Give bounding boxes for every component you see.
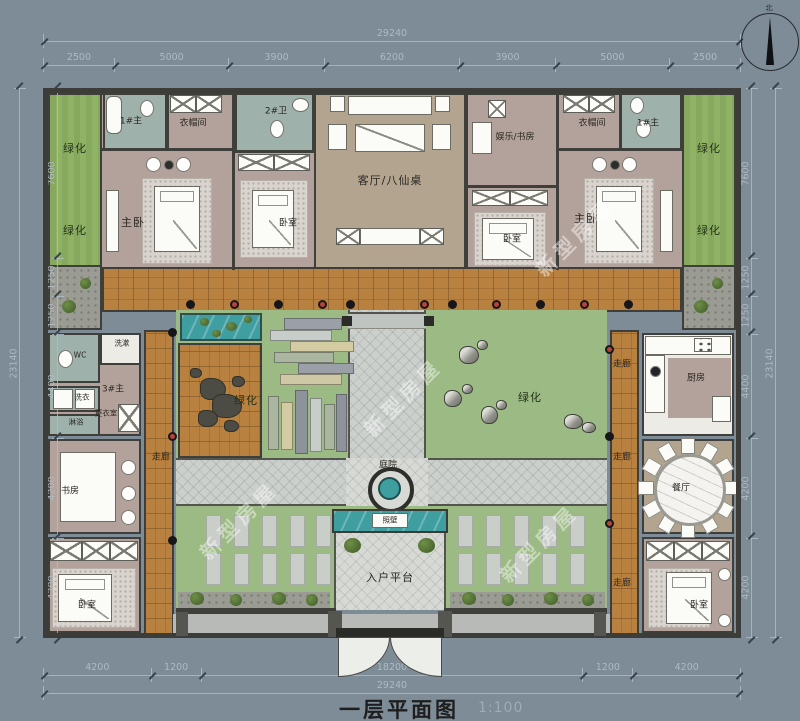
site-outer-wall — [43, 88, 741, 638]
dim-label: 23140 — [765, 348, 776, 378]
dim-label: 1200 — [595, 662, 621, 673]
floor-plan-canvas: 29240 2500500039006200390050002500 42001… — [0, 0, 800, 721]
dim-label: 4200 — [674, 662, 700, 673]
room-label-wash: 洗漱 — [115, 338, 130, 349]
compass-north-label: 北 — [765, 3, 773, 14]
dim-label: 1200 — [163, 662, 189, 673]
room-label-cloak: 衣帽间 — [179, 116, 206, 129]
dim-label: 4400 — [741, 375, 752, 399]
room-label-corridor: 走廊 — [613, 450, 631, 463]
room-label-ent-study: 娱乐/书房 — [495, 130, 534, 143]
dim-label: 3900 — [494, 52, 520, 63]
room-label-corridor: 走廊 — [152, 450, 170, 463]
room-label-dining: 餐厅 — [672, 481, 690, 494]
room-label-green: 绿化 — [63, 140, 87, 156]
gate-pier — [176, 612, 188, 636]
gate-pier — [594, 612, 606, 636]
room-label-green: 绿化 — [697, 222, 721, 238]
column-dot — [274, 300, 283, 309]
dim-segment: 5000 — [555, 58, 670, 72]
column-dot — [605, 519, 614, 528]
column-dot — [605, 345, 614, 354]
column-dot — [605, 432, 614, 441]
drawing-title: 一层平面图 — [333, 694, 465, 721]
dim-label: 29240 — [376, 28, 408, 39]
dim-label: 2500 — [66, 52, 92, 63]
wall — [232, 93, 235, 270]
dim-label: 3900 — [263, 52, 289, 63]
south-wall-east — [444, 608, 607, 614]
dim-label: 4200 — [741, 476, 752, 500]
dim-segment: 4400 — [746, 334, 758, 438]
label-courtyard: 庭院 — [379, 458, 397, 471]
dim-label: 4200 — [741, 576, 752, 600]
room-label-green: 绿化 — [697, 140, 721, 156]
dim-segment: 4200 — [632, 668, 741, 682]
column-dot — [346, 300, 355, 309]
dim-segment: 4200 — [43, 668, 151, 682]
dim-top-total: 29240 — [43, 34, 741, 48]
dim-label: 1250 — [741, 266, 752, 290]
label-screen-wall: 照壁 — [383, 515, 398, 526]
dim-segment: 6200 — [324, 58, 460, 72]
room-label-corridor: 走廊 — [613, 576, 631, 589]
dim-segment: 2500 — [43, 58, 114, 72]
column-dot — [420, 300, 429, 309]
wall — [235, 150, 314, 153]
compass-icon — [741, 13, 799, 71]
dim-right-segments: 760012501250440042004200 — [746, 88, 758, 638]
wall — [619, 93, 622, 150]
dim-label: 4200 — [84, 662, 110, 673]
wall — [466, 185, 559, 188]
column-dot — [492, 300, 501, 309]
room-label-corridor: 走廊 — [613, 357, 631, 370]
south-wall-west — [176, 608, 336, 614]
wall — [166, 93, 169, 150]
column-dot — [186, 300, 195, 309]
column-dot — [580, 300, 589, 309]
room-label-kitchen: 厨房 — [687, 371, 705, 384]
room-label-study: 书房 — [61, 484, 79, 497]
room-label-bedroom: 卧室 — [503, 232, 521, 245]
dim-segment: 4200 — [746, 438, 758, 537]
dim-label: 7600 — [741, 162, 752, 186]
dim-segment: 5000 — [114, 58, 229, 72]
column-dot — [168, 432, 177, 441]
column-dot — [230, 300, 239, 309]
dim-label: 2500 — [692, 52, 718, 63]
dim-segment: 2500 — [669, 58, 741, 72]
dim-label: 6200 — [379, 52, 405, 63]
dim-segment: 1200 — [151, 668, 201, 682]
dim-left-total: 23140 — [14, 88, 26, 638]
dim-segment: 1200 — [582, 668, 632, 682]
dim-label: 1250 — [741, 304, 752, 328]
dim-top-segments: 2500500039006200390050002500 — [43, 58, 741, 72]
room-label-bedroom: 卧室 — [690, 598, 708, 611]
dim-right-total: 23140 — [770, 88, 782, 638]
room-label-green: 绿化 — [63, 222, 87, 238]
room-label-bath2: 2#卫 — [265, 104, 287, 117]
room-label-shower: 淋浴 — [69, 417, 84, 428]
room-label-dressing: 更衣室 — [95, 408, 118, 419]
wall — [100, 148, 235, 151]
dim-segment: 4200 — [746, 538, 758, 638]
column-dot — [168, 536, 177, 545]
column-dot — [536, 300, 545, 309]
column-dot — [448, 300, 457, 309]
dim-label: 5000 — [599, 52, 625, 63]
label-entry-platform: 入户平台 — [366, 569, 414, 585]
room-label-laundry: 洗衣 — [75, 392, 90, 403]
room-label-living: 客厅/八仙桌 — [358, 172, 423, 188]
dim-segment: 3900 — [228, 58, 323, 72]
room-label-bath1: 1#主 — [120, 114, 142, 127]
room-label-green: 绿化 — [518, 389, 542, 405]
room-label-bath1: 1#主 — [637, 116, 659, 129]
room-label-cloak: 衣帽间 — [578, 116, 605, 129]
room-label-bedroom: 卧室 — [78, 598, 96, 611]
dim-segment: 7600 — [746, 88, 758, 258]
drawing-scale: 1:100 — [478, 700, 523, 716]
compass-needle-icon — [766, 17, 774, 65]
dim-label: 23140 — [9, 348, 20, 378]
column-dot — [624, 300, 633, 309]
dim-segment: 3900 — [459, 58, 554, 72]
column-dot — [318, 300, 327, 309]
dim-label: 29240 — [376, 680, 408, 691]
room-label-bedroom: 卧室 — [279, 216, 297, 229]
column-dot — [168, 328, 177, 337]
room-label-suite3: 3#主 — [102, 382, 124, 395]
room-label-master: 主卧 — [121, 214, 145, 230]
room-label-wc: WC — [74, 351, 87, 360]
room-label-green: 绿化 — [234, 392, 258, 408]
dim-label: 5000 — [159, 52, 185, 63]
